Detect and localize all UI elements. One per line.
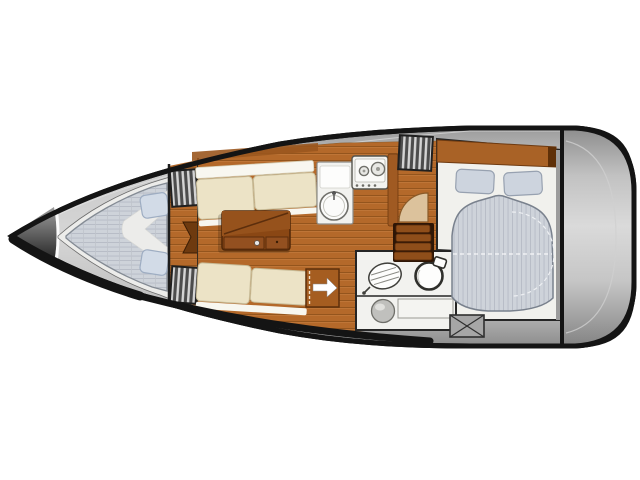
entry-door bbox=[306, 269, 339, 307]
aft-berth-pillow-right bbox=[503, 171, 542, 196]
storage-locker-hatch-fwd-bottom bbox=[170, 266, 198, 304]
storage-locker-hatch-fwd-top bbox=[170, 169, 198, 207]
stern-transom bbox=[562, 128, 634, 346]
head-compartment bbox=[356, 251, 456, 330]
v-berth-pillow-port bbox=[139, 192, 169, 219]
boat-floor-plan-figure bbox=[0, 0, 640, 480]
aft-berth-mattress bbox=[452, 196, 553, 312]
galley-wood-trim bbox=[388, 154, 398, 226]
step-1 bbox=[396, 225, 430, 233]
storage-locker-hatch-aft bbox=[398, 135, 433, 171]
step-2 bbox=[396, 234, 431, 242]
saloon-table bbox=[218, 211, 290, 253]
step-3 bbox=[395, 243, 431, 251]
head-counter bbox=[398, 299, 453, 318]
galley-faucet bbox=[332, 191, 336, 195]
drawer-knob bbox=[255, 241, 260, 246]
companionway-steps bbox=[393, 223, 434, 262]
step-4 bbox=[394, 252, 432, 260]
boat-floor-plan bbox=[0, 0, 640, 480]
shower-seat bbox=[372, 300, 395, 323]
aft-berth-pillow-left bbox=[455, 169, 494, 194]
v-berth-pillow-starboard bbox=[139, 249, 169, 276]
aft-cabin bbox=[437, 139, 563, 320]
storage-box-crossed bbox=[450, 315, 484, 337]
